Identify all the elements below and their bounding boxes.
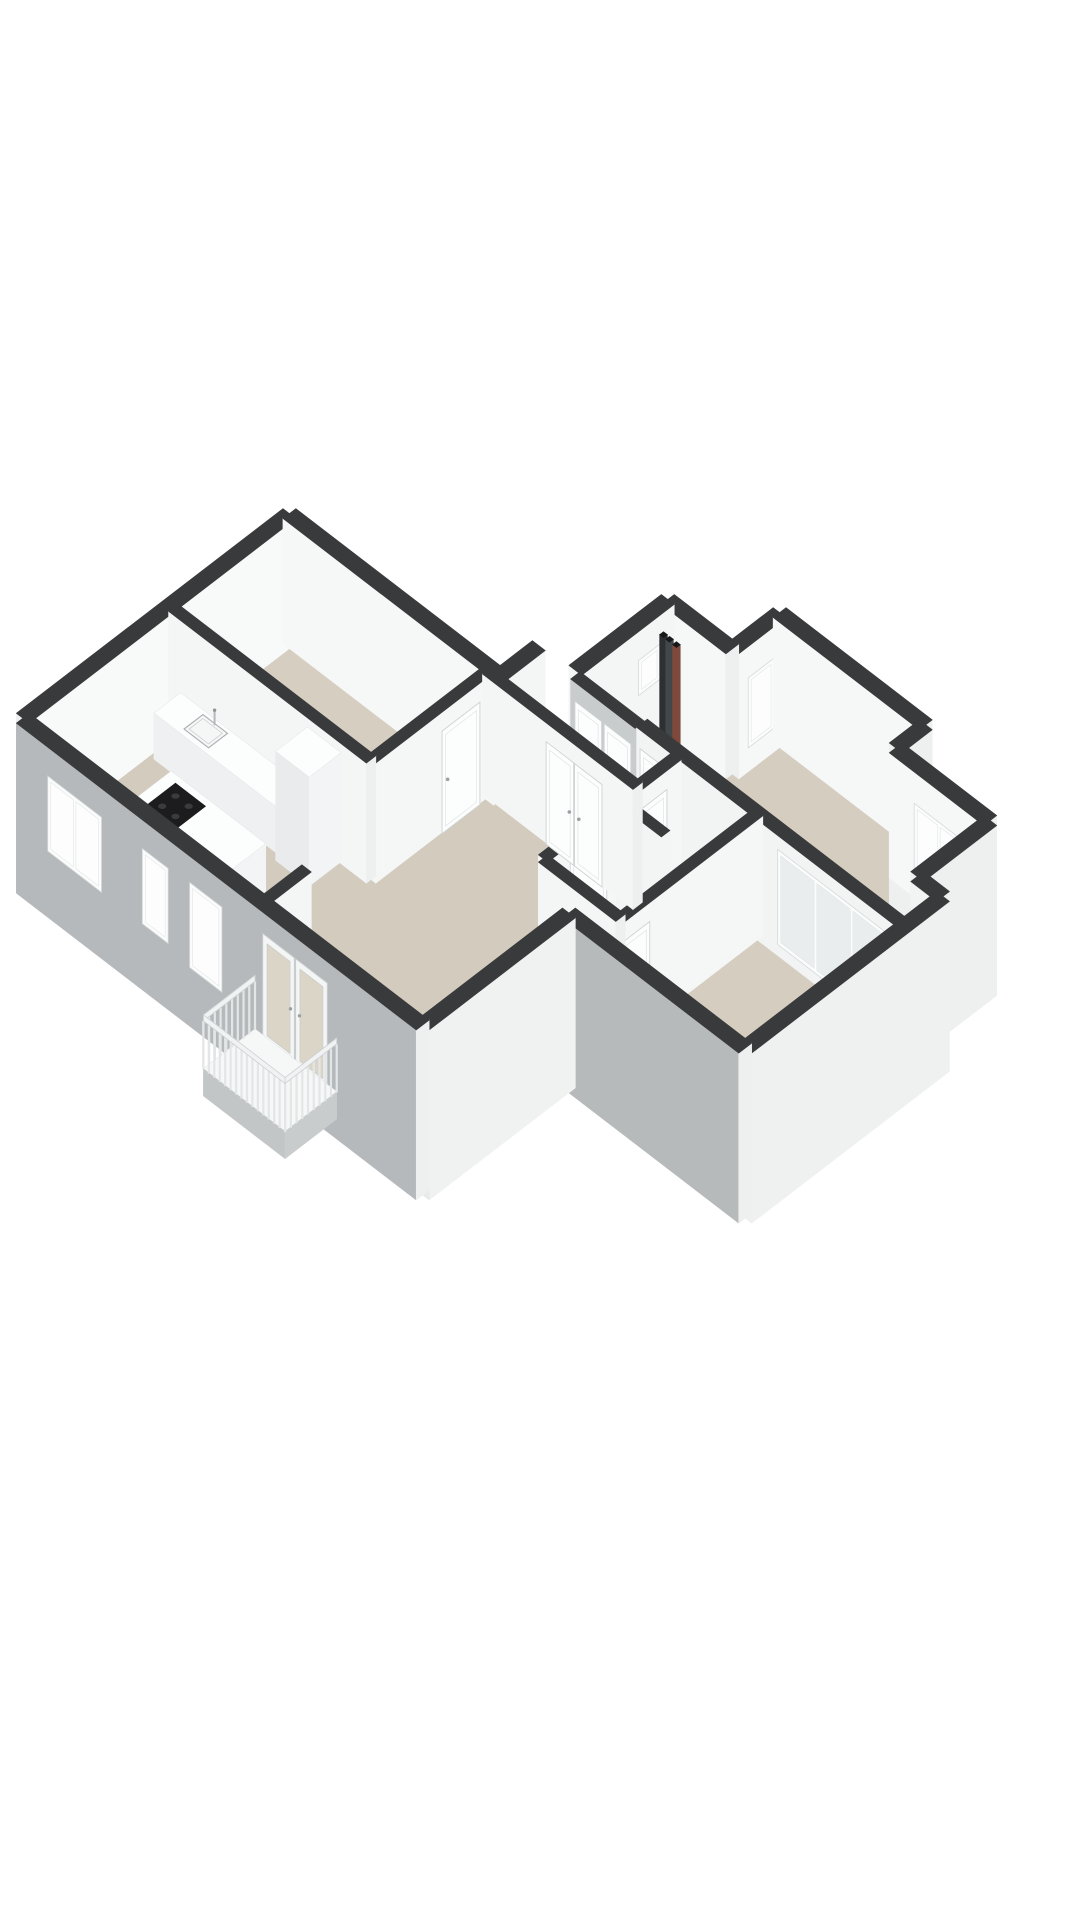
screenshot-root [0,0,1080,1920]
kitchen-tall-cabinet [276,727,341,886]
floorplan-canvas [0,0,1080,1920]
floorplan-3d-render [0,0,1080,1920]
